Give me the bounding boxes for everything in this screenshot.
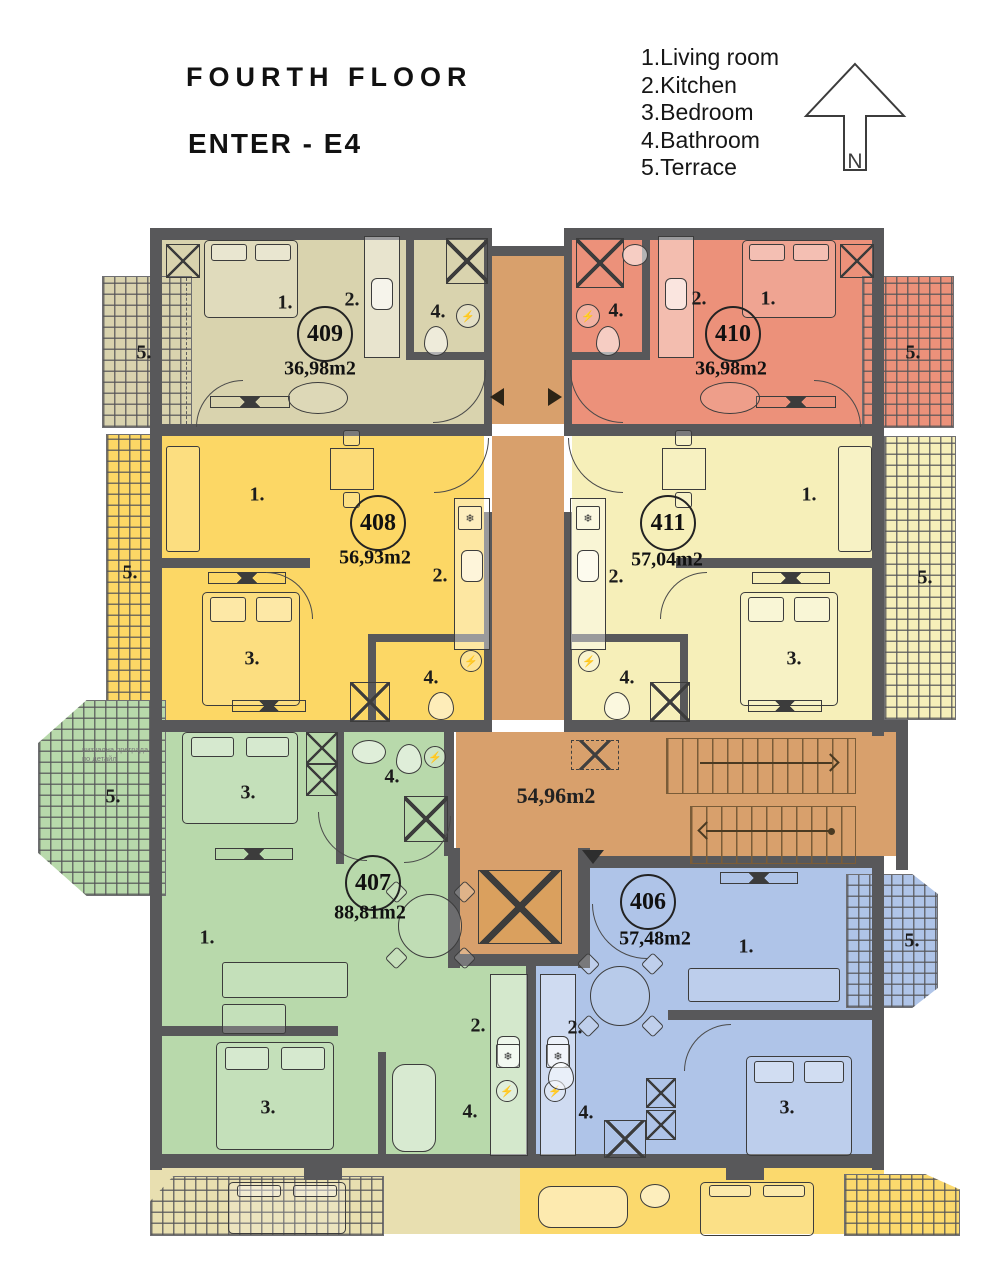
shaft-dashed-box (571, 740, 619, 770)
wall (378, 1052, 386, 1156)
dining-table (590, 966, 650, 1026)
sink (640, 1184, 670, 1208)
room-label-terrace: 5. (123, 562, 138, 585)
room-label-terrace: 5. (137, 342, 152, 365)
room-label-kitchen: 2. (692, 288, 707, 311)
bathtub (392, 1064, 436, 1152)
entry-arrow-left-icon (490, 388, 504, 406)
room-label-bedroom: 3. (261, 1097, 276, 1120)
entrance-arrow-icon (582, 850, 604, 864)
toilet (428, 692, 454, 720)
room-label-kitchen: 2. (345, 289, 360, 312)
room-label-living: 1. (200, 927, 215, 950)
radiator (752, 572, 830, 584)
toilet (548, 1062, 574, 1090)
sink (622, 244, 648, 266)
toilet (596, 326, 620, 356)
legend-item-terrace: 5.Terrace (641, 154, 779, 182)
apt-406-number: 406 (620, 874, 676, 930)
legend-item-living: 1.Living room (641, 44, 779, 72)
terrace-note-line2: по детайл (82, 755, 152, 764)
wall (896, 720, 908, 870)
wall (162, 558, 310, 568)
elevator-shaft (478, 870, 562, 944)
table (700, 382, 760, 414)
kitchen-counter (658, 236, 694, 358)
room-label-living: 1. (802, 484, 817, 507)
bed (742, 240, 836, 318)
legend-item-bathroom: 4.Bathroom (641, 127, 779, 155)
room-label-bathroom: 4. (579, 1102, 594, 1125)
fridge-icon: ❄ (576, 506, 600, 530)
electric-panel-icon: ⚡ (496, 1080, 518, 1102)
wall (726, 1168, 764, 1180)
room-label-bathroom: 4. (431, 301, 446, 324)
bed (228, 1182, 346, 1234)
page-title: FOURTH FLOOR (186, 62, 472, 93)
room-label-terrace: 5. (918, 567, 933, 590)
stair-direction-line (700, 762, 832, 764)
shower (446, 238, 488, 284)
apt-411-area-label: 57,04m2 (631, 549, 703, 572)
room-label-bathroom: 4. (385, 766, 400, 789)
chair (675, 430, 692, 446)
wall (676, 558, 872, 568)
legend-item-kitchen: 2.Kitchen (641, 72, 779, 100)
apt-409-area-label: 36,98m2 (284, 358, 356, 381)
corridor-area-label: 54,96m2 (517, 783, 596, 809)
wall (872, 228, 884, 736)
room-label-living: 1. (739, 936, 754, 959)
toilet (604, 692, 630, 720)
sink (352, 740, 386, 764)
apt-408-area-label: 56,93m2 (339, 547, 411, 570)
chair (343, 430, 360, 446)
radiator (232, 700, 306, 712)
sofa (838, 446, 872, 552)
stair-direction-line (706, 830, 832, 832)
sofa (688, 968, 840, 1002)
room-legend: 1.Living room 2.Kitchen 3.Bedroom 4.Bath… (641, 44, 779, 182)
room-label-terrace: 5. (906, 342, 921, 365)
electric-panel-icon: ⚡ (576, 304, 600, 328)
bed (746, 1056, 852, 1156)
sofa (222, 1004, 286, 1034)
room-label-kitchen: 2. (433, 565, 448, 588)
stairs-lower-flight (690, 806, 856, 864)
electric-panel-icon: ⚡ (460, 650, 482, 672)
north-arrow-icon: N (798, 56, 916, 184)
floor-plan: FOURTH FLOOR ENTER - E4 1.Living room 2.… (0, 0, 1000, 1274)
toilet (396, 744, 422, 774)
electric-panel-icon: ⚡ (424, 746, 446, 768)
radiator (720, 872, 798, 884)
bed (182, 732, 298, 824)
room-label-kitchen: 2. (568, 1017, 583, 1040)
room-label-bedroom: 3. (245, 648, 260, 671)
apt-number-text: 409 (307, 321, 343, 348)
stair-start-dot (828, 828, 835, 835)
terrace-note: визуална преграда по детайл (82, 746, 152, 763)
wall (150, 228, 162, 1170)
apt-409-number: 409 (297, 306, 353, 362)
wall (406, 232, 414, 360)
wall (406, 352, 492, 360)
room-label-bathroom: 4. (424, 667, 439, 690)
apt-number-text: 406 (630, 889, 666, 916)
room-label-bedroom: 3. (241, 782, 256, 805)
lower-terrace-right (844, 1174, 960, 1236)
wardrobe (306, 764, 338, 796)
wall (150, 1154, 884, 1168)
enter-label: ENTER - E4 (188, 128, 362, 160)
bed (700, 1182, 814, 1236)
wall (578, 848, 590, 968)
wardrobe (840, 244, 874, 278)
table (662, 448, 706, 490)
kitchen-counter (364, 236, 400, 358)
room-label-bathroom: 4. (463, 1101, 478, 1124)
room-label-kitchen: 2. (609, 566, 624, 589)
wall (484, 246, 572, 256)
table (288, 382, 348, 414)
shower (650, 682, 690, 722)
apt-408-number: 408 (350, 495, 406, 551)
fridge-icon: ❄ (496, 1044, 520, 1068)
shaft-box (646, 1078, 676, 1108)
apt-406-terrace (846, 874, 938, 1008)
shower (576, 238, 624, 288)
toilet (424, 326, 448, 356)
bathtub (538, 1186, 628, 1228)
room-label-bedroom: 3. (780, 1097, 795, 1120)
room-label-bedroom: 3. (787, 648, 802, 671)
corridor-region (492, 436, 564, 720)
sofa (166, 446, 200, 552)
wardrobe (166, 244, 200, 278)
room-label-living: 1. (250, 484, 265, 507)
wall (668, 1010, 884, 1020)
sofa (222, 962, 348, 998)
room-label-living: 1. (761, 288, 776, 311)
shower (350, 682, 390, 722)
radiator (748, 700, 822, 712)
table (330, 448, 374, 490)
shower (604, 1120, 646, 1158)
apt-407-area-label: 88,81m2 (334, 902, 406, 925)
terrace-divider-line (186, 278, 187, 424)
wall (150, 720, 492, 732)
wall (150, 228, 492, 240)
wall (564, 240, 572, 436)
apt-406-area-label: 57,48m2 (619, 928, 691, 951)
apt-411-number: 411 (640, 495, 696, 551)
room-label-living: 1. (278, 292, 293, 315)
apt-410-number: 410 (705, 306, 761, 362)
apt-number-text: 411 (651, 510, 686, 537)
electric-panel-icon: ⚡ (456, 304, 480, 328)
north-label: N (847, 150, 862, 173)
fridge-icon: ❄ (458, 506, 482, 530)
radiator (215, 848, 293, 860)
legend-item-bedroom: 3.Bedroom (641, 99, 779, 127)
dining-table (398, 894, 462, 958)
apt-407-terrace (38, 700, 166, 896)
shaft-box (646, 1110, 676, 1140)
electric-panel-icon: ⚡ (578, 650, 600, 672)
apt-number-text: 407 (355, 870, 391, 897)
room-label-kitchen: 2. (471, 1015, 486, 1038)
room-label-terrace: 5. (905, 930, 920, 953)
room-label-terrace: 5. (106, 786, 121, 809)
entry-arrow-right-icon (548, 388, 562, 406)
apt-number-text: 408 (360, 510, 396, 537)
room-label-bathroom: 4. (609, 300, 624, 323)
wall (564, 720, 908, 732)
wall (304, 1168, 342, 1180)
apt-410-area-label: 36,98m2 (695, 358, 767, 381)
room-label-bathroom: 4. (620, 667, 635, 690)
apt-number-text: 410 (715, 321, 751, 348)
wardrobe (306, 732, 338, 764)
